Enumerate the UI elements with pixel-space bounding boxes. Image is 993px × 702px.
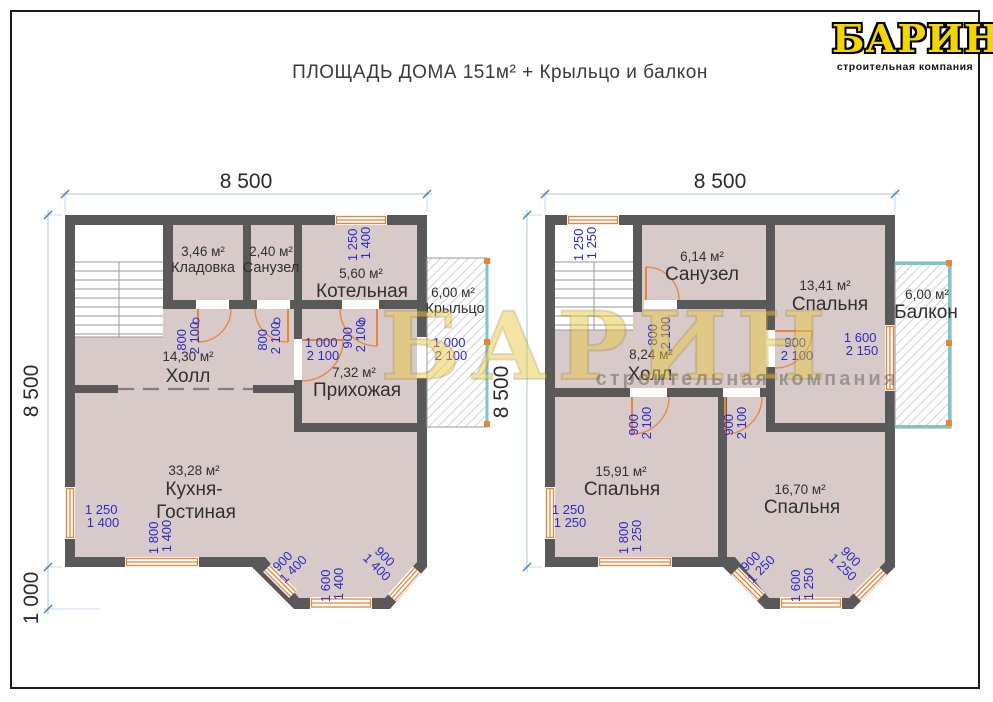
room-area: 16,70 м² (774, 482, 826, 497)
room-name-kitchen: Кухня- (165, 479, 222, 500)
window-dim: 1 250 1 400 (345, 225, 373, 261)
window-dim: 1 600 1 250 (788, 566, 816, 602)
room-area: 7,32 м² (332, 365, 376, 380)
door-dim: 900 2 100 (340, 320, 368, 353)
room-name-bathroom2: Санузел (665, 264, 739, 285)
room-area: 3,46 м² (181, 244, 225, 259)
dim-floor1-width: 8 500 (220, 170, 273, 193)
door-dim: 900 2 100 (781, 335, 814, 363)
dim-floor1-bay: 1 000 (20, 572, 43, 625)
drawing-sheet: ПЛОЩАДЬ ДОМА 151м² + Крыльцо и балкон БА… (0, 0, 993, 702)
floor-plans-canvas: 8 500 8 500 1 000 3,46 м² Кладовка 2,40 … (0, 0, 993, 702)
room-name-bedroom1: Спальня (792, 294, 868, 315)
room-name-porch: Крыльцо (425, 301, 484, 317)
door-dim: 800 2 100 (174, 322, 202, 355)
room-area: 5,60 м² (339, 266, 383, 281)
window-dim: 1 250 1 250 (571, 225, 599, 261)
floor1-staircase (75, 225, 163, 337)
room-name-entry: Прихожая (313, 380, 401, 401)
floor1-plan: 8 500 8 500 1 000 3,46 м² Кладовка 2,40 … (20, 170, 490, 624)
door-dim: 1 000 2 100 (433, 335, 469, 363)
room-name-bathroom: Санузел (243, 260, 300, 276)
room-name-hall2: Холл (628, 364, 673, 385)
dim-floor1-height: 8 500 (20, 365, 43, 418)
room-name-bedroom2: Спальня (584, 479, 660, 500)
door-dim: 900 2 100 (721, 407, 749, 440)
floor2-plan: 8 500 8 500 6,14 м² Санузел 13,41 м² Спа… (490, 170, 958, 609)
door-dim: 800 2 100 (255, 322, 283, 355)
door-dim: 1 600 2 150 (844, 330, 880, 358)
door-dim: 900 2 100 (626, 407, 654, 440)
room-area: 6,14 м² (680, 249, 724, 264)
room-name-bedroom3: Спальня (764, 497, 840, 518)
room-area: 15,91 м² (595, 464, 647, 479)
dim-floor2-height: 8 500 (490, 366, 513, 419)
room-name-balcony: Балкон (894, 302, 958, 323)
window-dim: 1 800 1 400 (146, 518, 174, 554)
room-area: 6,00 м² (905, 287, 949, 302)
window-dim: 1 800 1 250 (616, 518, 644, 554)
room-area: 33,28 м² (168, 463, 220, 478)
room-area: 2,40 м² (249, 244, 293, 259)
door-dim: 1 000 2 100 (305, 335, 341, 363)
window-dim: 1 250 1 250 (552, 502, 588, 530)
room-name-boiler: Котельная (316, 281, 408, 302)
room-name-hall: Холл (166, 366, 211, 387)
dim-floor2-width: 8 500 (694, 170, 747, 193)
door-dim: 800 2 100 (645, 317, 673, 350)
window-dim: 1 600 1 400 (318, 566, 346, 602)
floor2-balcony (895, 260, 952, 428)
room-name-storage: Кладовка (171, 260, 236, 276)
room-area: 6,00 м² (431, 285, 475, 300)
window-dim: 1 250 1 400 (85, 502, 121, 530)
room-area: 13,41 м² (799, 278, 851, 293)
